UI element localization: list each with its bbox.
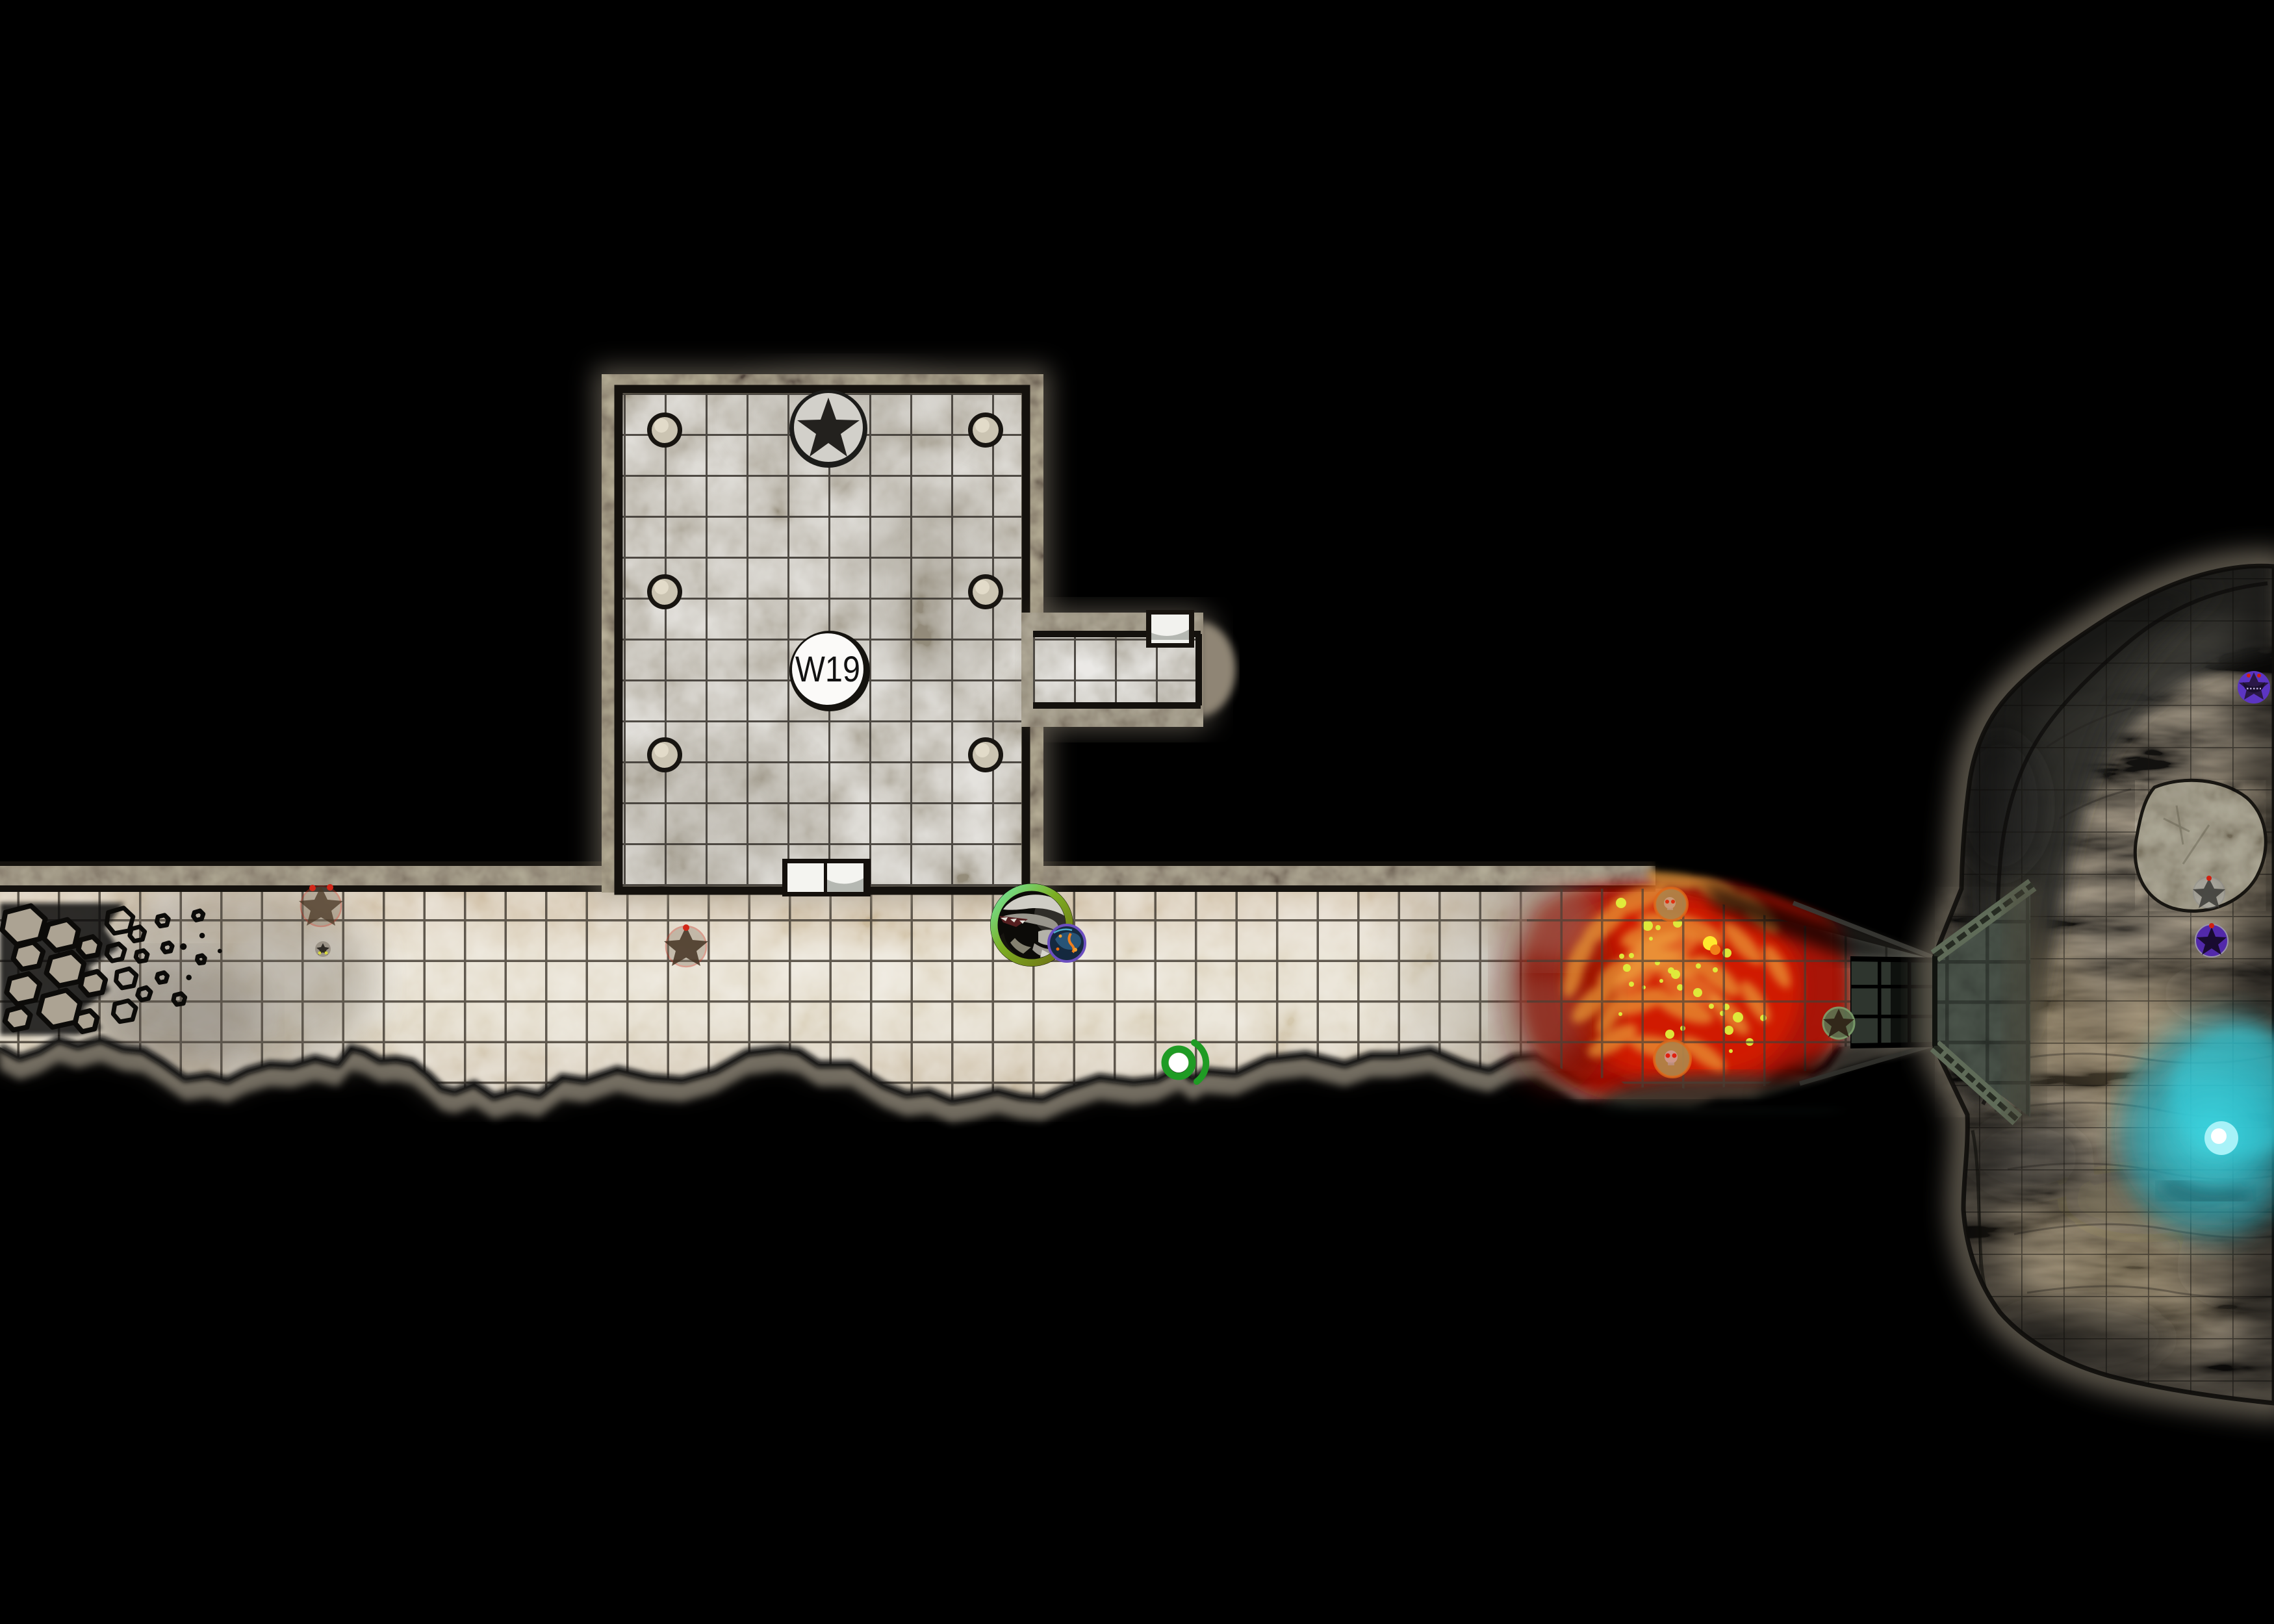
svg-text:W19: W19 — [795, 648, 860, 689]
